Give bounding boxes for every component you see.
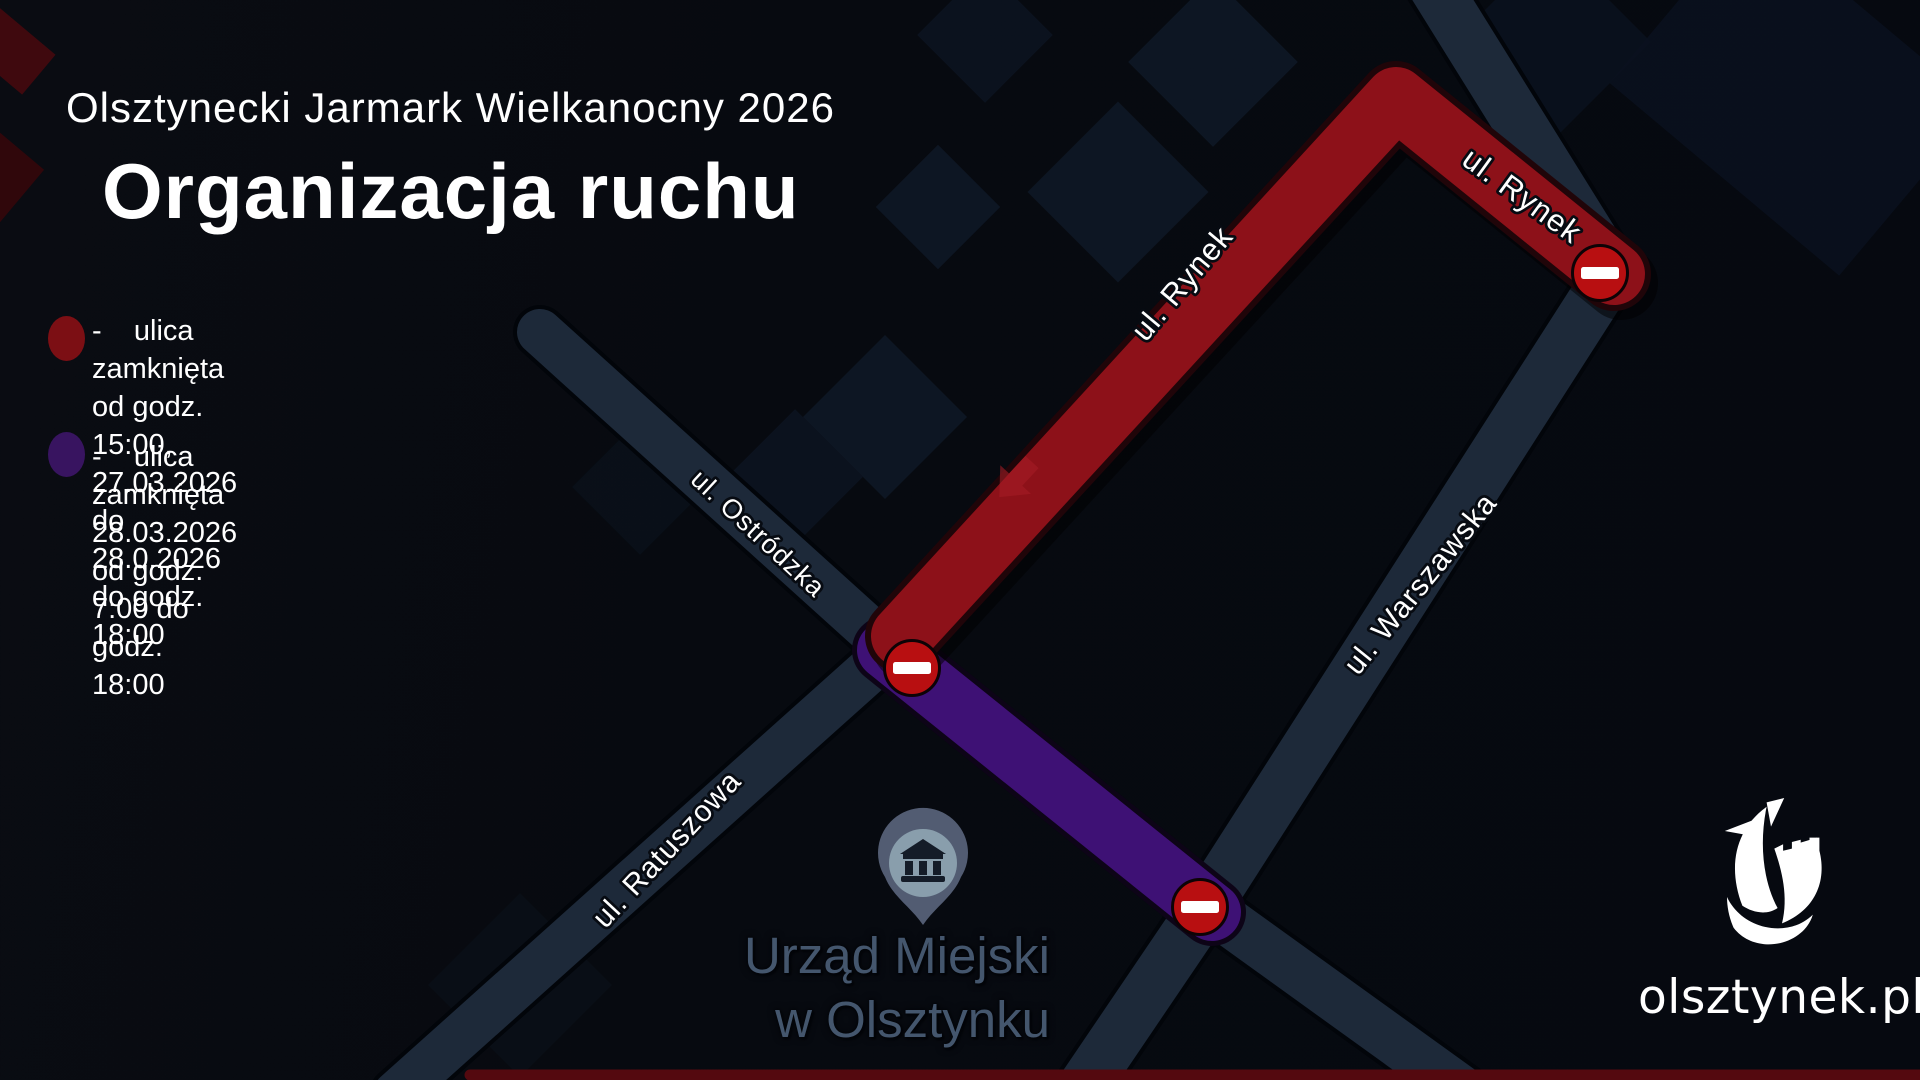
legend-purple-line2: od godz. 7:00 do godz. 18:00 bbox=[92, 555, 211, 701]
poi-label-line1: Urząd Miejski bbox=[550, 924, 1050, 988]
edge-closed-road-fragments bbox=[0, 3, 56, 225]
legend-item-purple: - ulica zamknięta 28.03.2026od godz. 7:0… bbox=[92, 438, 237, 704]
road-southeast-continuation bbox=[1204, 904, 1462, 1080]
olsztynek-logo-mark bbox=[1696, 798, 1846, 963]
street-label-ratuszowa: ul. Ratuszowa bbox=[586, 765, 748, 935]
no-entry-icon-junction bbox=[885, 641, 940, 696]
poi-pin bbox=[878, 808, 968, 925]
legend-dot-red bbox=[48, 316, 85, 361]
event-subtitle: Olsztynecki Jarmark Wielkanocny 2026 bbox=[66, 84, 835, 132]
legend-dot-purple bbox=[48, 432, 85, 477]
legend-purple-line1: - ulica zamknięta 28.03.2026 bbox=[92, 441, 240, 549]
page-title: Organizacja ruchu bbox=[102, 146, 835, 237]
header: Olsztynecki Jarmark Wielkanocny 2026 Org… bbox=[66, 84, 835, 237]
logo-text: olsztynek.pl bbox=[1638, 970, 1904, 1025]
no-entry-icon-rynek-east bbox=[1573, 246, 1628, 301]
traffic-map-poster: ul. Rynek ul. Rynek ul. Ostródzka ul. Ra… bbox=[0, 0, 1920, 1080]
poi-label-line2: w Olsztynku bbox=[550, 988, 1050, 1052]
no-entry-icon-warszawska bbox=[1173, 880, 1228, 935]
poi-label: Urząd Miejski w Olsztynku bbox=[550, 924, 1050, 1052]
footer-logo: olsztynek.pl bbox=[1638, 798, 1904, 1025]
